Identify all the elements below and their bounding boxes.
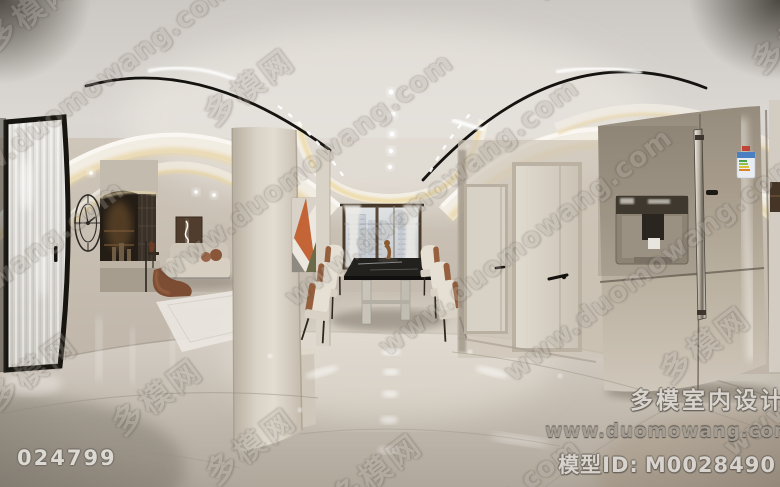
brand-website: www.duomowang.com xyxy=(545,420,780,442)
brand-title: 多模室内设计 xyxy=(630,381,780,415)
brand-block: 多模室内设计 www.duomowang.com 模型ID:M0028490 xyxy=(545,381,780,479)
model-id-line: 模型ID:M0028490 xyxy=(558,449,776,479)
panorama-preview: www.duomowang.com多模网www.duomowang.com多模网… xyxy=(0,0,780,487)
model-id-value: M0028490 xyxy=(645,453,776,477)
photo-id: 024799 xyxy=(17,446,117,470)
model-id-label: 模型ID: xyxy=(558,453,639,477)
